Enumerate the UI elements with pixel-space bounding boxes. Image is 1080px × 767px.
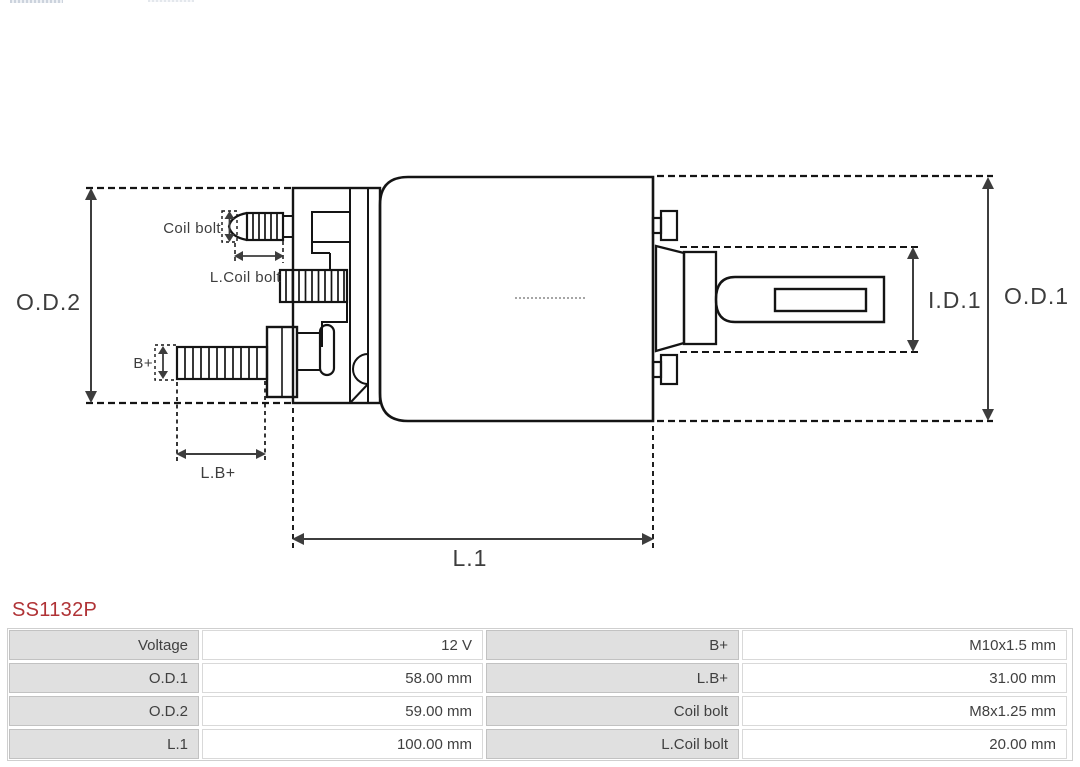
- page: O.D.2: [0, 0, 1080, 767]
- od1-label: O.D.1: [1004, 283, 1069, 309]
- b-plus-terminal: [177, 347, 267, 379]
- l1-dimension: L.1: [292, 408, 654, 571]
- spec-label-lb-plus: L.B+: [486, 663, 739, 693]
- spec-label-od1: O.D.1: [9, 663, 199, 693]
- id1-label: I.D.1: [928, 287, 982, 313]
- b-plus-dimension: B+: [133, 345, 177, 380]
- solenoid-technical-drawing: O.D.2: [0, 0, 1080, 596]
- coil-bolt-label: Coil bolt: [163, 220, 221, 237]
- coil-bolt-dimension: Coil bolt: [163, 211, 237, 242]
- spec-label-voltage: Voltage: [9, 630, 199, 660]
- spec-label-coil-bolt: Coil bolt: [486, 696, 739, 726]
- spec-value-b-plus: M10x1.5 mm: [742, 630, 1067, 660]
- spec-label-b-plus: B+: [486, 630, 739, 660]
- part-number: SS1132P: [12, 599, 97, 621]
- l-coil-bolt-label: L.Coil bolt: [210, 269, 282, 286]
- rear-bolt-top: [653, 211, 677, 240]
- spec-value-od1: 58.00 mm: [202, 663, 483, 693]
- rear-bolt-bottom: [653, 355, 677, 384]
- b-plus-label: B+: [133, 355, 153, 372]
- l-coil-bolt-dimension: L.Coil bolt: [210, 241, 284, 286]
- spec-label-l-coil-bolt: L.Coil bolt: [486, 729, 739, 759]
- spec-value-l1: 100.00 mm: [202, 729, 483, 759]
- spec-value-lb-plus: 31.00 mm: [742, 663, 1067, 693]
- spec-label-od2: O.D.2: [9, 696, 199, 726]
- spec-label-l1: L.1: [9, 729, 199, 759]
- od1-dimension: O.D.1: [657, 176, 1069, 421]
- b-plus-nut: [267, 325, 334, 397]
- plunger: [656, 246, 884, 351]
- spec-value-voltage: 12 V: [202, 630, 483, 660]
- coil-bolt-terminal: [229, 213, 293, 240]
- spec-value-od2: 59.00 mm: [202, 696, 483, 726]
- id1-dimension: I.D.1: [680, 247, 982, 352]
- od2-label: O.D.2: [16, 289, 81, 315]
- spec-value-coil-bolt: M8x1.25 mm: [742, 696, 1067, 726]
- lb-plus-label: L.B+: [201, 465, 236, 482]
- l1-label: L.1: [453, 545, 488, 571]
- spec-table: Voltage 12 V B+ M10x1.5 mm O.D.1 58.00 m…: [7, 628, 1073, 761]
- lb-plus-dimension: L.B+: [176, 381, 266, 482]
- coil-thread-block: [280, 270, 347, 302]
- spec-value-l-coil-bolt: 20.00 mm: [742, 729, 1067, 759]
- od2-dimension: O.D.2: [16, 188, 293, 403]
- solenoid-body: [380, 177, 653, 421]
